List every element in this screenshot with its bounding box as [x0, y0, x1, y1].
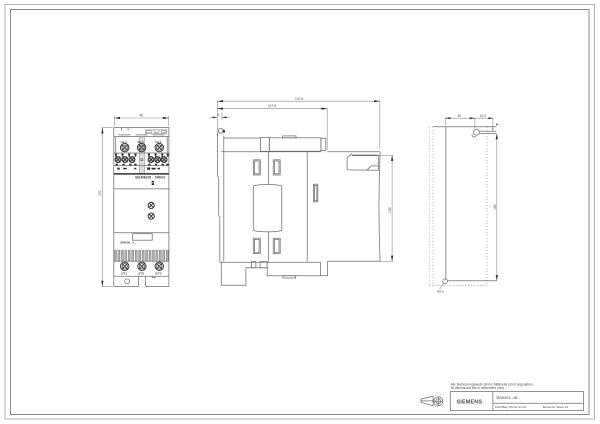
svg-text:5: 5 — [217, 113, 219, 117]
svg-text:6/T3: 6/T3 — [155, 271, 161, 275]
svg-text:All dimensions are in millimet: All dimensions are in millimeters (mm) — [451, 386, 505, 390]
svg-text:SIRIUS: SIRIUS — [155, 175, 166, 179]
svg-text:Ø4.8: Ø4.8 — [437, 290, 444, 294]
svg-text:117.6: 117.6 — [268, 104, 276, 108]
svg-text:2/T1: 2/T1 — [121, 271, 127, 275]
svg-text:100: 100 — [388, 207, 392, 213]
svg-text:150: 150 — [493, 204, 497, 210]
svg-text:4/T2: 4/T2 — [138, 271, 144, 275]
svg-text:Bezeichn./Issue 01: Bezeichn./Issue 01 — [543, 405, 569, 409]
svg-text:45: 45 — [139, 114, 143, 118]
svg-text:30: 30 — [458, 114, 462, 118]
svg-text:SIEMENS: SIEMENS — [135, 175, 152, 179]
svg-text:147.6: 147.6 — [295, 97, 303, 101]
svg-text:10.5: 10.5 — [480, 114, 487, 118]
svg-text:3RW303.-1B..: 3RW303.-1B.. — [496, 396, 520, 400]
svg-text:3RW30..-1.: 3RW30..-1. — [120, 241, 136, 245]
svg-text:SIEMENS: SIEMENS — [457, 399, 483, 405]
svg-text:Fürth/Bay DS AC 01.03: Fürth/Bay DS AC 01.03 — [495, 405, 527, 409]
svg-text:150: 150 — [98, 190, 102, 196]
